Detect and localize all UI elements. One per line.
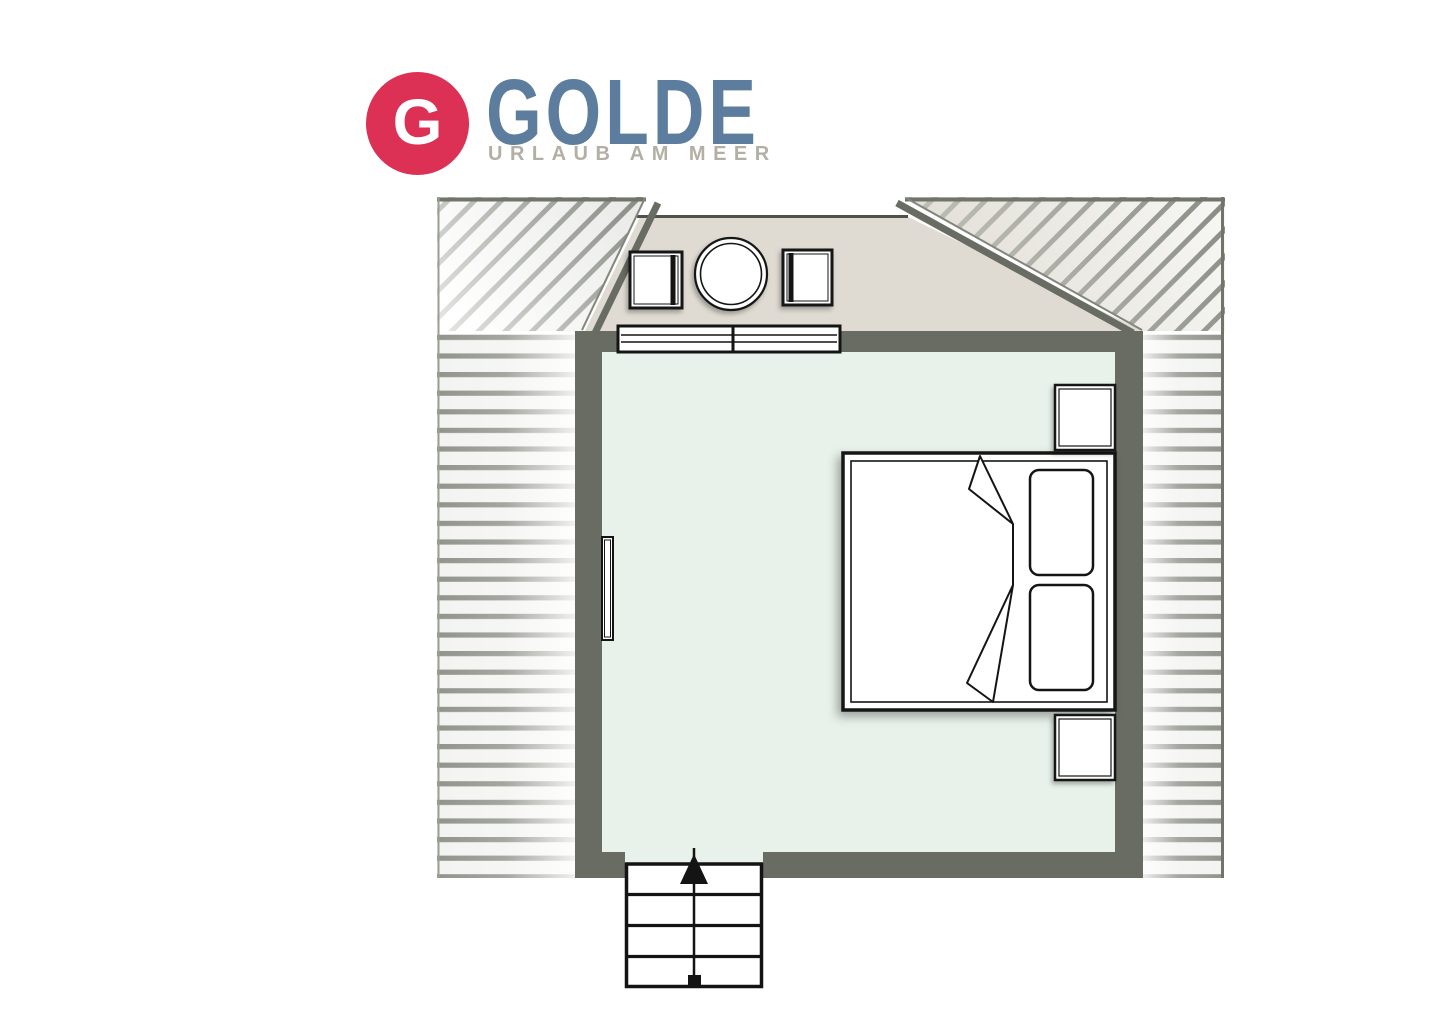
wall-right: [1115, 331, 1143, 878]
nightstand-bottom-body: [1055, 715, 1115, 780]
wall-bottom-left-segment: [575, 852, 625, 878]
roof-slope-left-battens: [437, 334, 575, 878]
wall-bottom-right-segment: [763, 852, 1143, 878]
radiator-body: [602, 537, 613, 640]
nightstand-top-body: [1055, 385, 1115, 450]
pillow-top: [1030, 470, 1093, 575]
round-table: [695, 238, 767, 310]
roof-slope-right: [1143, 334, 1222, 878]
nightstand-bottom: [1055, 715, 1115, 780]
window: [618, 326, 840, 352]
radiator: [602, 537, 613, 640]
floor-plan-page: G GOLDE URLAUB AM MEER: [0, 0, 1440, 1018]
window-frame: [618, 326, 840, 352]
roof-slope-left: [437, 334, 575, 878]
double-bed: [843, 453, 1115, 710]
floor-plan-drawing: [0, 0, 1440, 1018]
nightstand-top: [1055, 385, 1115, 450]
staircase: [625, 848, 763, 988]
wall-left: [575, 331, 602, 878]
roof-slope-right-battens: [1143, 334, 1222, 878]
stair-start-marker: [688, 975, 701, 987]
pillow-bottom: [1030, 585, 1093, 690]
